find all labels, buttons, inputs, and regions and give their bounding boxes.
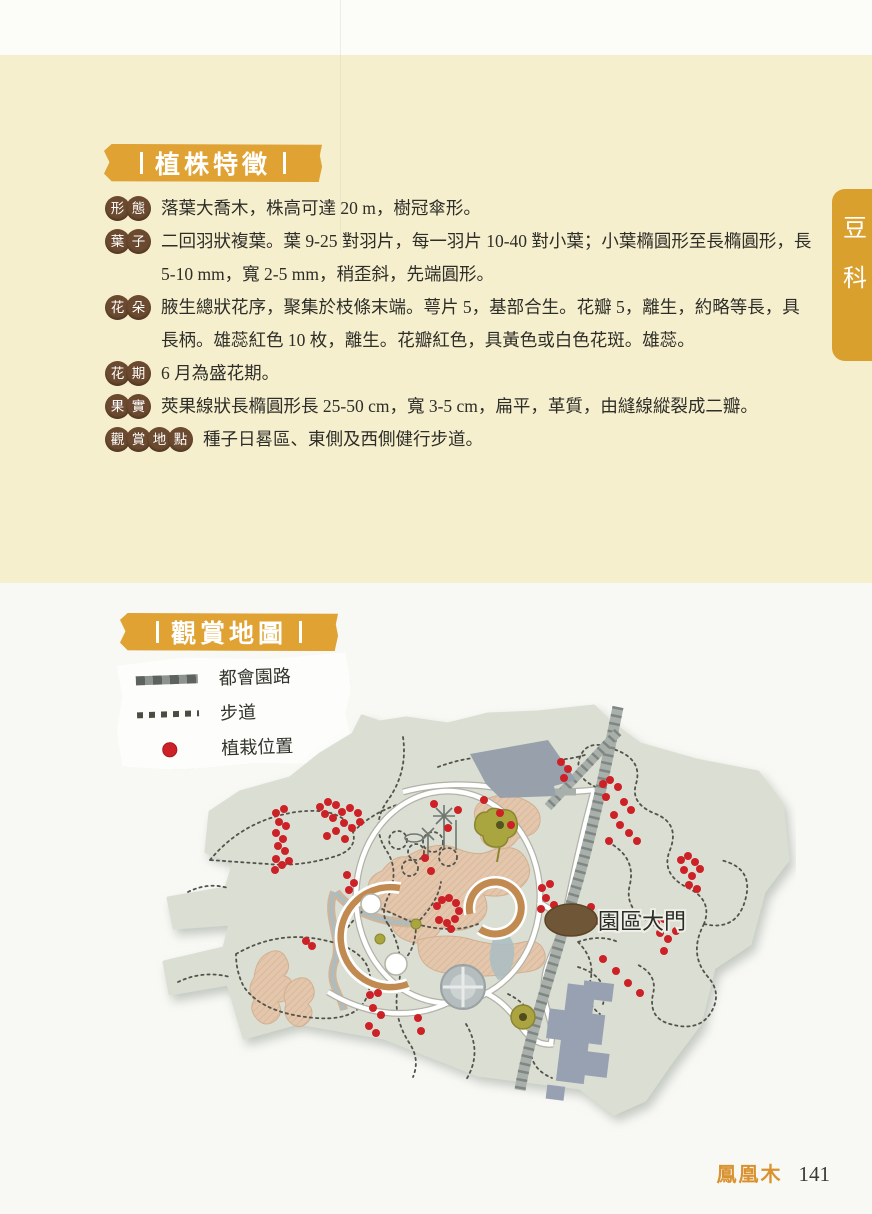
feature-row-viewing-spot: 觀賞地點 種子日晷區、東側及西側健行步道。 bbox=[105, 423, 817, 456]
feature-row-fruit: 果實 莢果線狀長橢圓形長 25-50 cm，寬 3-5 cm，扁平，革質，由縫線… bbox=[105, 390, 817, 423]
park-map: 園區大門 bbox=[148, 692, 796, 1132]
feature-text-form: 落葉大喬木，株高可達 20 m，樹冠傘形。 bbox=[161, 192, 817, 225]
park-gate-label: 園區大門 bbox=[598, 909, 686, 934]
feature-row-flower: 花朵 腋生總狀花序，聚集於枝條末端。萼片 5，基部合生。花瓣 5，離生，約略等長… bbox=[105, 291, 817, 357]
feature-text-leaf: 二回羽狀複葉。葉 9-25 對羽片，每一羽片 10-40 對小葉；小葉橢圓形至長… bbox=[161, 225, 817, 291]
road-line-swatch bbox=[135, 674, 199, 685]
page-footer: 鳳凰木 141 bbox=[717, 1158, 831, 1187]
feature-badge-season: 花期 bbox=[105, 357, 147, 386]
footer-species-name: 鳳凰木 bbox=[717, 1158, 783, 1187]
banner-bar-left bbox=[156, 621, 159, 643]
feature-badge-form: 形態 bbox=[105, 192, 147, 221]
feature-row-leaf: 葉子 二回羽狀複葉。葉 9-25 對羽片，每一羽片 10-40 對小葉；小葉橢圓… bbox=[105, 225, 817, 291]
footer-page-number: 141 bbox=[799, 1162, 831, 1187]
feature-text-fruit: 莢果線狀長橢圓形長 25-50 cm，寬 3-5 cm，扁平，革質，由縫線縱裂成… bbox=[161, 390, 817, 423]
park-gate-marker: 園區大門 bbox=[545, 904, 686, 936]
banner-bar-right bbox=[299, 621, 302, 643]
trait-feature-list: 形態 落葉大喬木，株高可達 20 m，樹冠傘形。 葉子 二回羽狀複葉。葉 9-2… bbox=[105, 192, 817, 456]
feature-badge-viewing-spot: 觀賞地點 bbox=[105, 423, 189, 452]
legend-label-road: 都會園路 bbox=[218, 662, 291, 690]
banner-bar-left bbox=[140, 152, 143, 174]
olive-plaza bbox=[511, 1005, 535, 1029]
olive-node bbox=[411, 919, 421, 929]
feature-text-viewing-spot: 種子日晷區、東側及西側健行步道。 bbox=[203, 423, 817, 456]
section-banner-map: 觀賞地圖 bbox=[120, 613, 338, 651]
legend-row-road: 都會園路 bbox=[134, 660, 351, 694]
feature-row-form: 形態 落葉大喬木，株高可達 20 m，樹冠傘形。 bbox=[105, 192, 817, 225]
section-title-traits: 植株特徵 bbox=[155, 145, 271, 181]
plaza-node bbox=[361, 894, 381, 914]
section-banner-traits: 植株特徵 bbox=[104, 144, 322, 182]
feature-text-season: 6 月為盛花期。 bbox=[161, 357, 817, 390]
section-title-map: 觀賞地圖 bbox=[171, 614, 287, 650]
feature-text-flower: 腋生總狀花序，聚集於枝條末端。萼片 5，基部合生。花瓣 5，離生，約略等長，具長… bbox=[161, 291, 817, 357]
fountain-plaza bbox=[441, 965, 485, 1009]
feature-badge-leaf: 葉子 bbox=[105, 225, 147, 254]
feature-row-season: 花期 6 月為盛花期。 bbox=[105, 357, 817, 390]
feature-badge-flower: 花朵 bbox=[105, 291, 147, 320]
feature-badge-fruit: 果實 bbox=[105, 390, 147, 419]
olive-node bbox=[375, 934, 385, 944]
plaza-node bbox=[385, 953, 407, 975]
banner-bar-right bbox=[283, 152, 286, 174]
park-map-svg: 園區大門 bbox=[148, 692, 796, 1132]
family-tab: 豆科 bbox=[832, 189, 872, 361]
